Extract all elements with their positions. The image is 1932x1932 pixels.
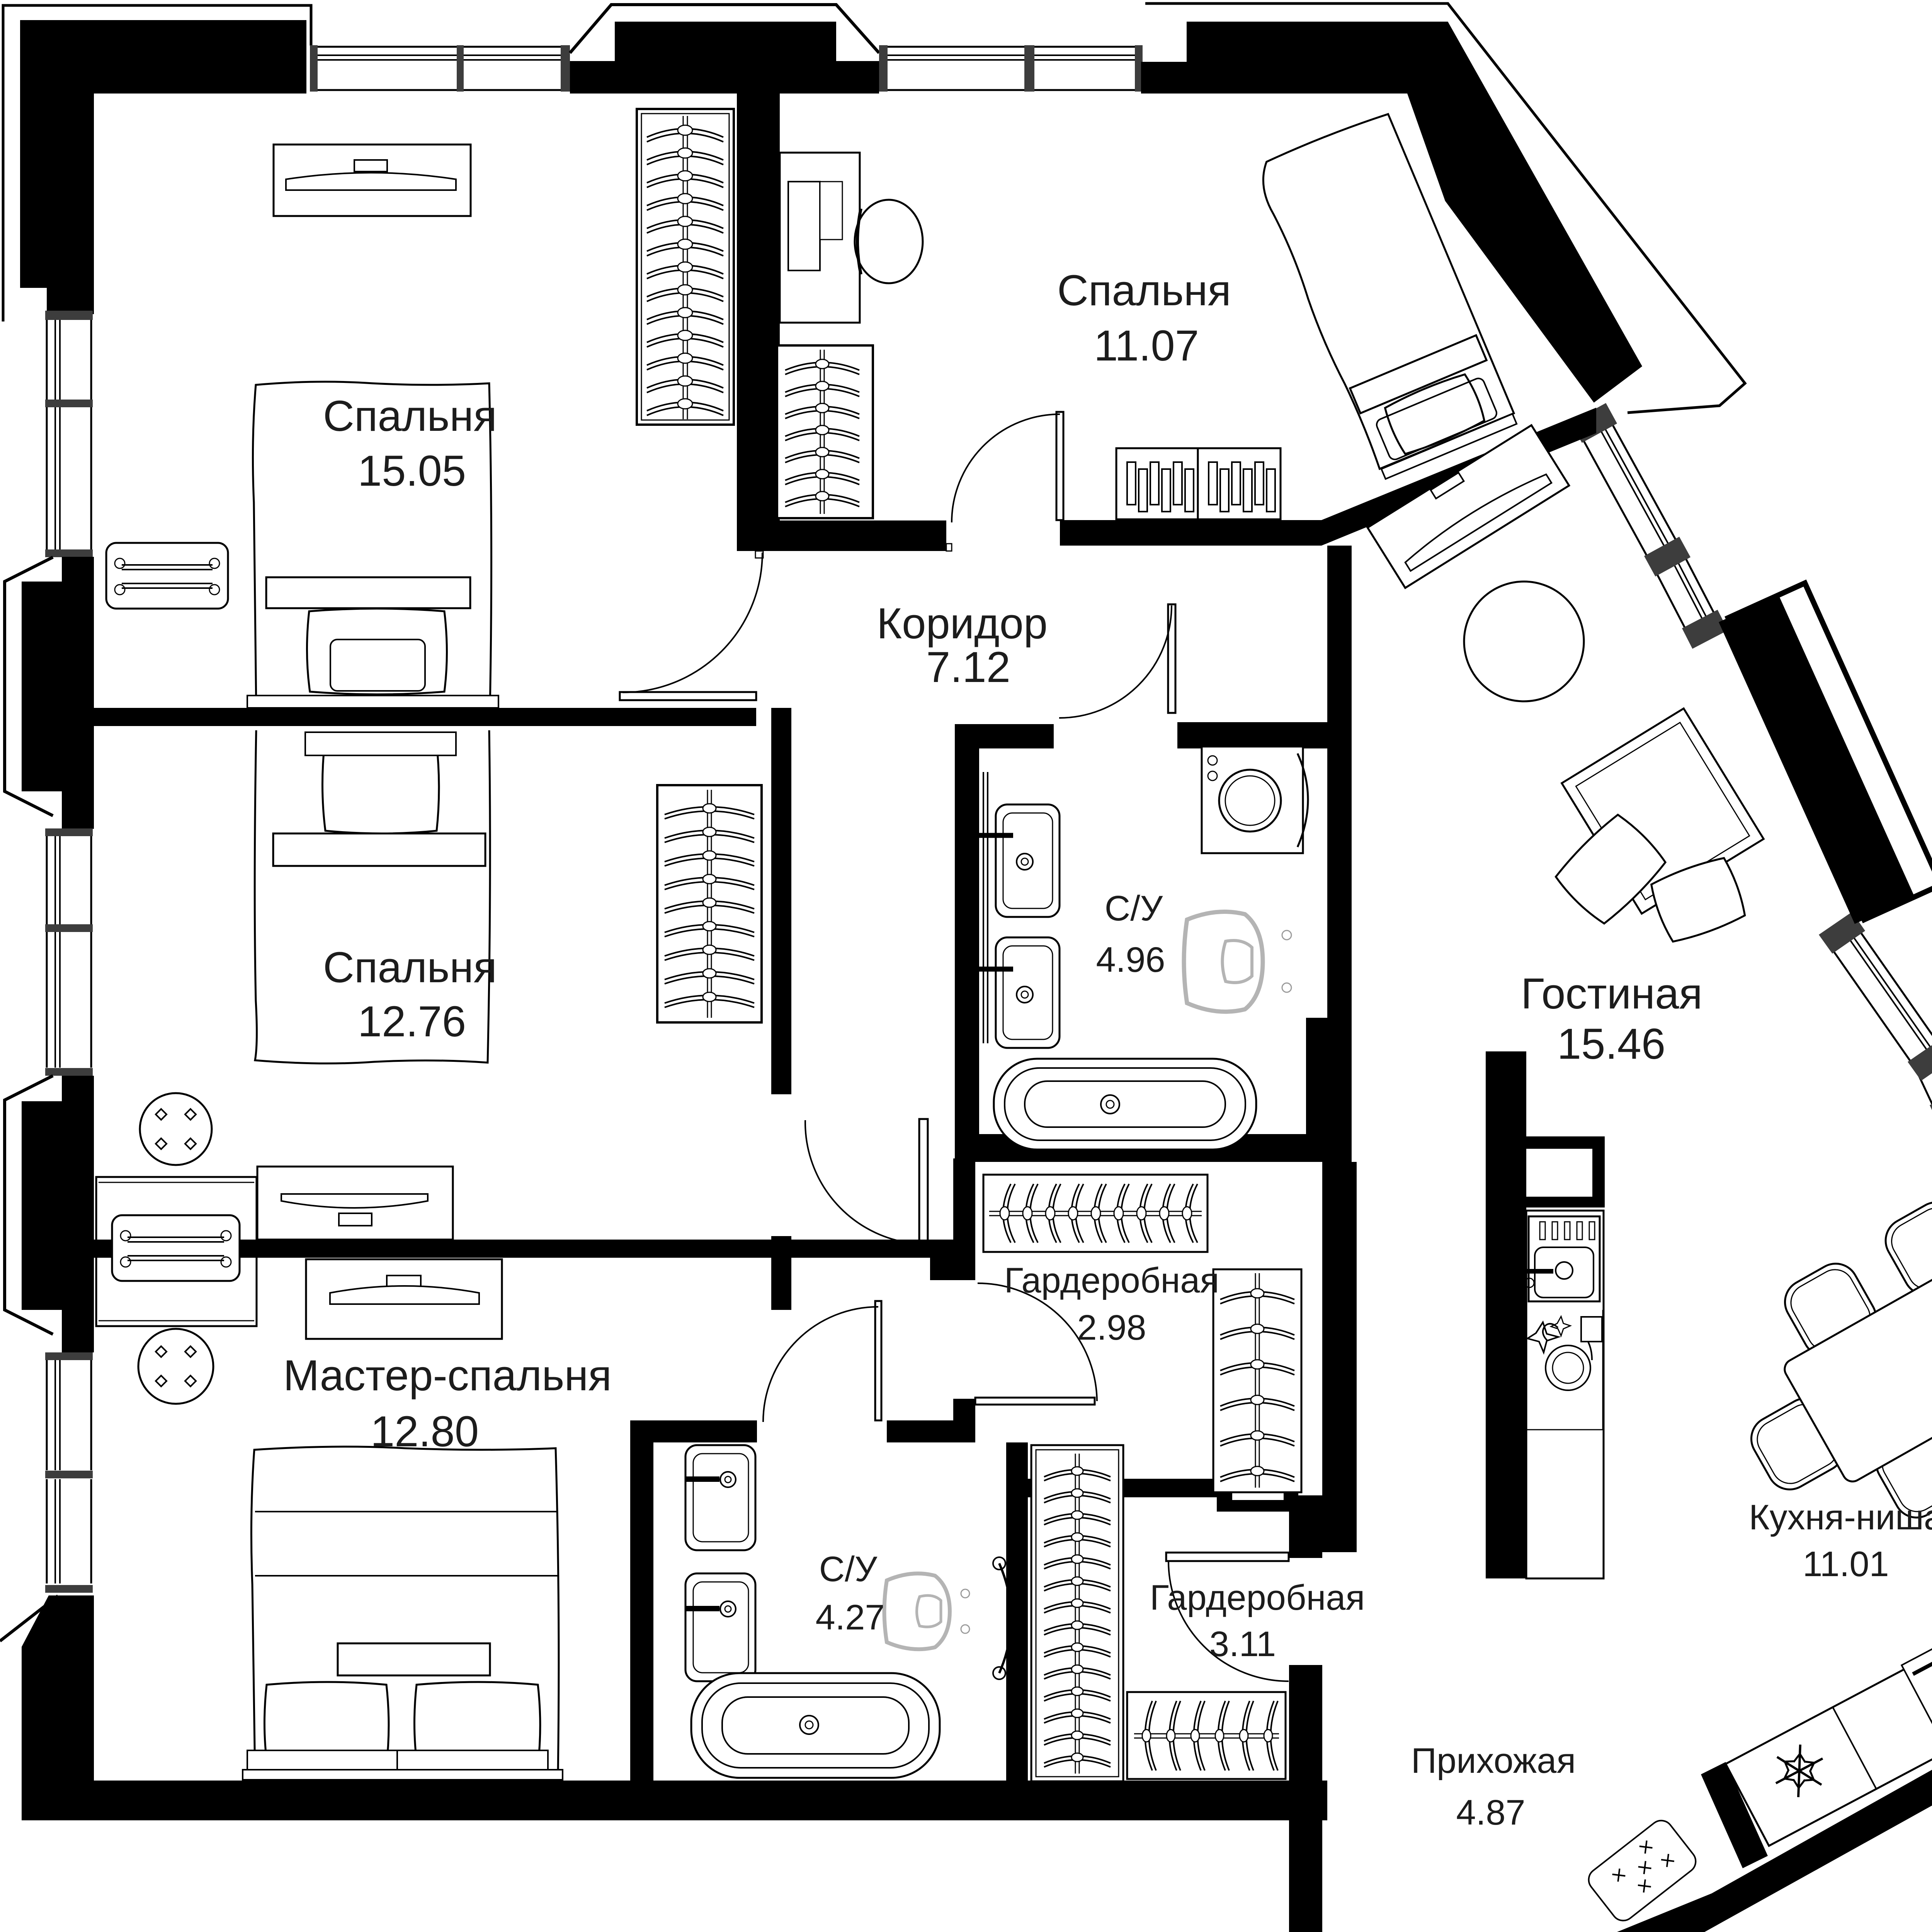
- svg-text:12.76: 12.76: [358, 997, 466, 1046]
- svg-text:Спальня: Спальня: [1057, 266, 1231, 315]
- svg-text:Гардеробная: Гардеробная: [1150, 1578, 1365, 1617]
- svg-text:Коридор: Коридор: [877, 599, 1048, 648]
- svg-text:Спальня: Спальня: [323, 943, 497, 992]
- svg-text:12.80: 12.80: [371, 1407, 479, 1456]
- svg-text:15.05: 15.05: [358, 447, 466, 495]
- svg-text:4.27: 4.27: [815, 1598, 884, 1637]
- svg-text:2.98: 2.98: [1077, 1308, 1146, 1347]
- svg-text:Гардеробная: Гардеробная: [1004, 1261, 1219, 1300]
- svg-text:Кухня-ниша: Кухня-ниша: [1749, 1498, 1932, 1537]
- svg-text:15.46: 15.46: [1557, 1020, 1665, 1068]
- svg-text:Прихожая: Прихожая: [1411, 1741, 1576, 1781]
- svg-text:4.87: 4.87: [1456, 1793, 1525, 1832]
- svg-text:3.11: 3.11: [1209, 1624, 1276, 1664]
- svg-text:11.01: 11.01: [1803, 1544, 1889, 1584]
- svg-text:С/У: С/У: [819, 1549, 878, 1589]
- svg-text:Спальня: Спальня: [323, 392, 497, 440]
- svg-text:С/У: С/У: [1105, 889, 1163, 928]
- svg-text:11.07: 11.07: [1094, 321, 1199, 370]
- svg-text:4.96: 4.96: [1096, 940, 1165, 980]
- svg-text:Гостиная: Гостиная: [1521, 969, 1702, 1018]
- svg-text:7.12: 7.12: [926, 643, 1010, 691]
- svg-text:Мастер-спальня: Мастер-спальня: [283, 1351, 612, 1400]
